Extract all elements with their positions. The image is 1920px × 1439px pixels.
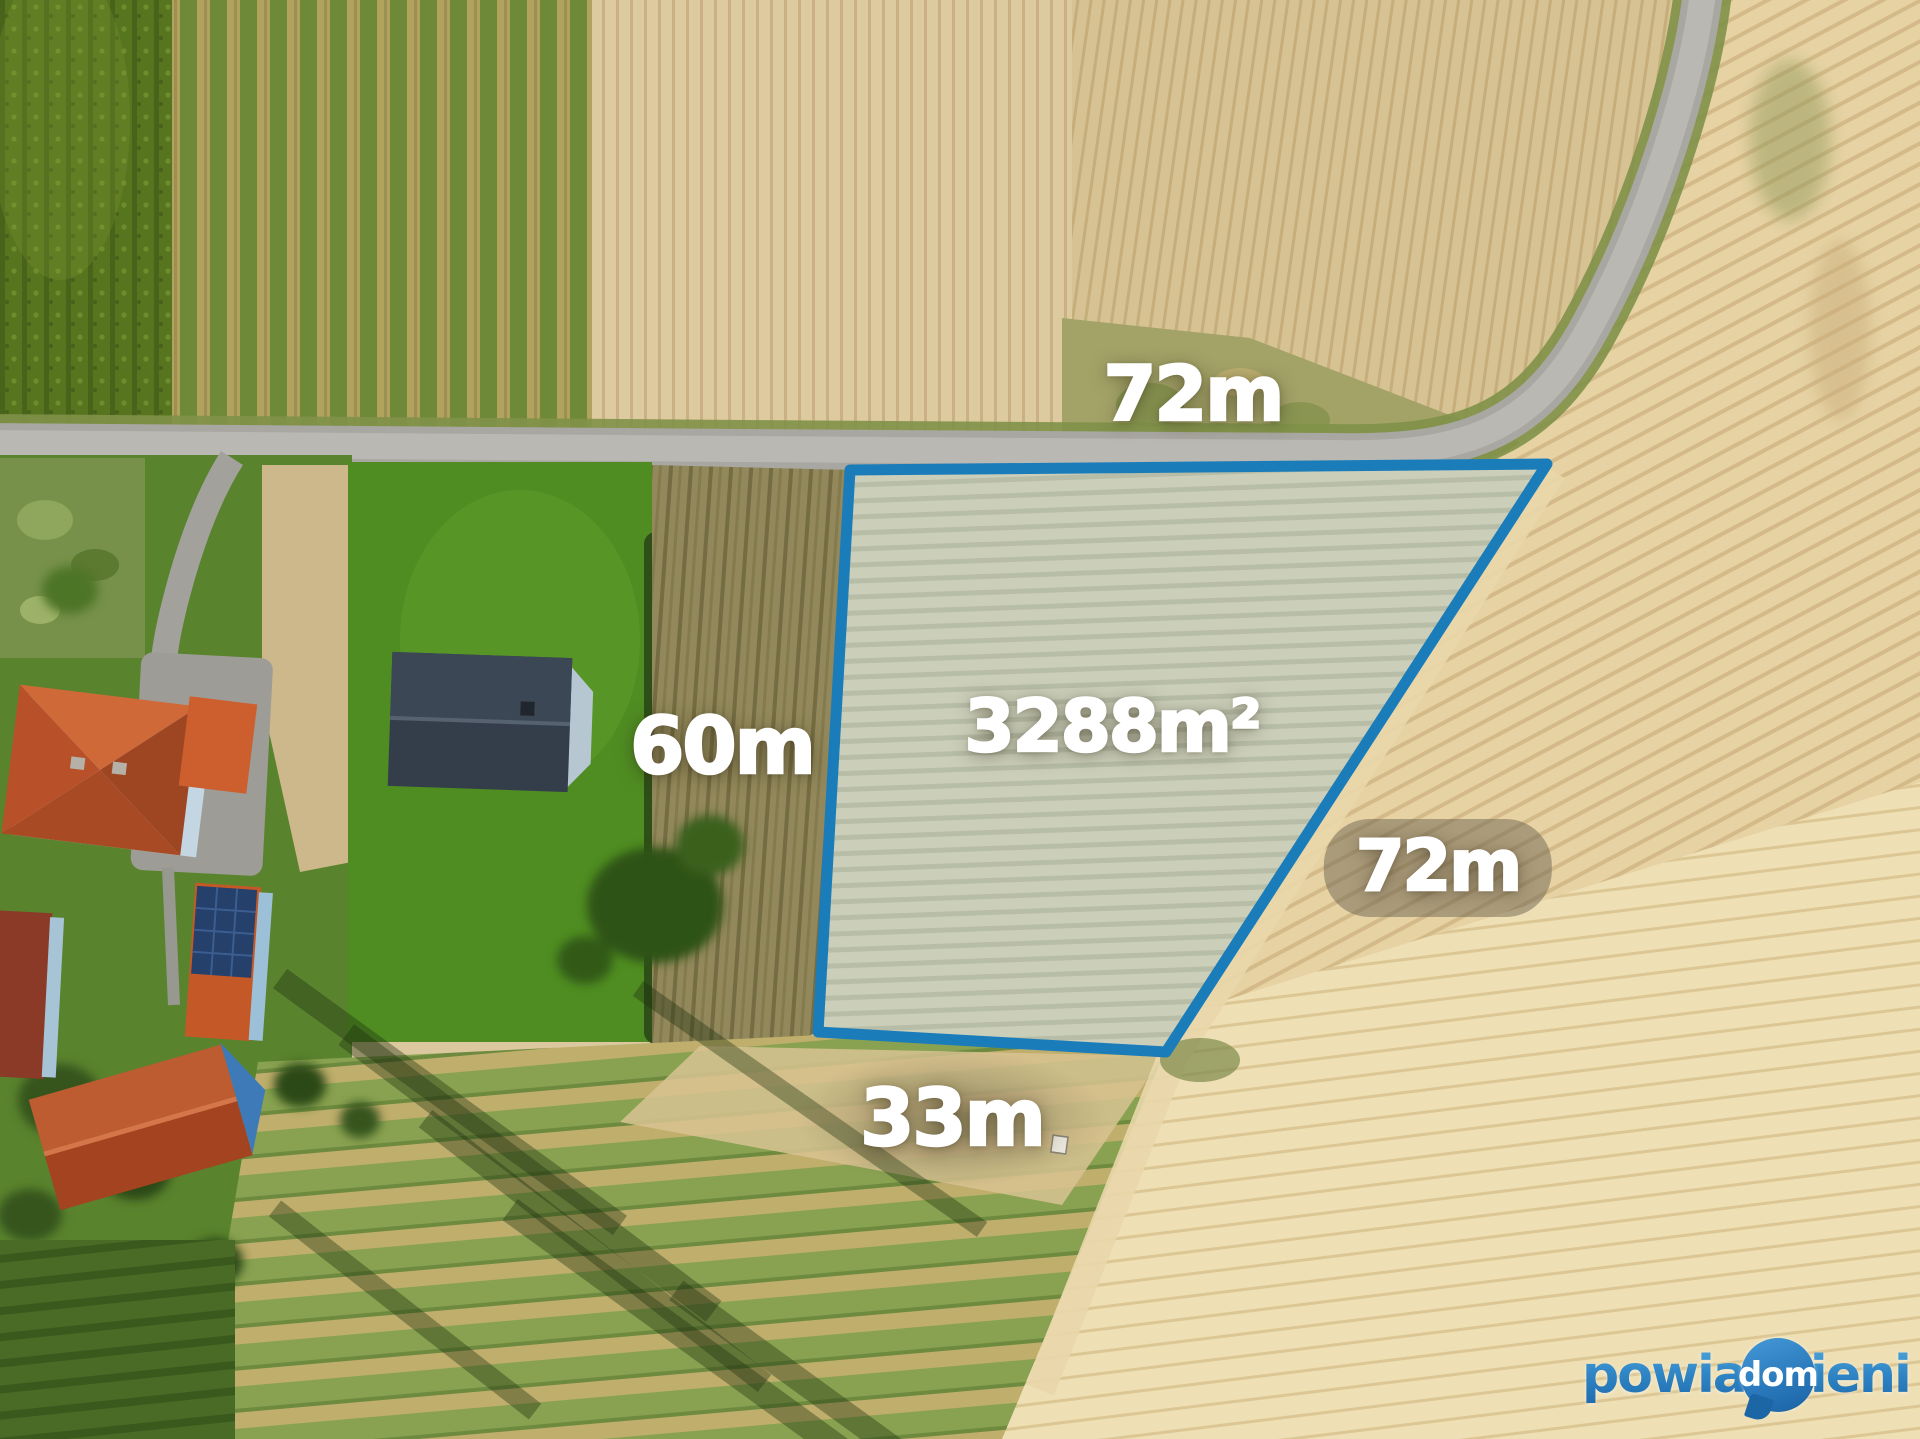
aerial-photo-svg — [0, 0, 1920, 1439]
plot-area-label: 3288m² — [965, 690, 1260, 762]
dimension-label-bottom: 33m — [796, 1050, 1108, 1188]
dark-roof-house — [388, 652, 595, 793]
logo-text-bubble: dom — [1741, 1338, 1815, 1412]
dimension-label-left: 60m — [630, 708, 814, 786]
striped-row-field — [172, 0, 592, 455]
garden-rows — [0, 1240, 235, 1439]
maroon-building — [0, 910, 64, 1079]
plowed-field — [592, 0, 1072, 455]
logo-text-left: powia — [1582, 1332, 1746, 1418]
solar-barn — [185, 883, 274, 1042]
powiadomieni-logo: powia dom ieni — [1582, 1332, 1910, 1418]
aerial-photo: 72m 60m 3288m² 72m 33m powia dom ieni — [0, 0, 1920, 1439]
dimension-label-right: 72m — [1324, 819, 1552, 917]
top-fields — [0, 0, 1710, 460]
logo-text-right: ieni — [1810, 1332, 1910, 1418]
garden-patch — [0, 458, 145, 658]
speech-bubble-icon: dom — [1741, 1338, 1815, 1412]
dimension-label-top: 72m — [1104, 356, 1283, 432]
path — [168, 868, 174, 1005]
garage — [179, 696, 257, 794]
